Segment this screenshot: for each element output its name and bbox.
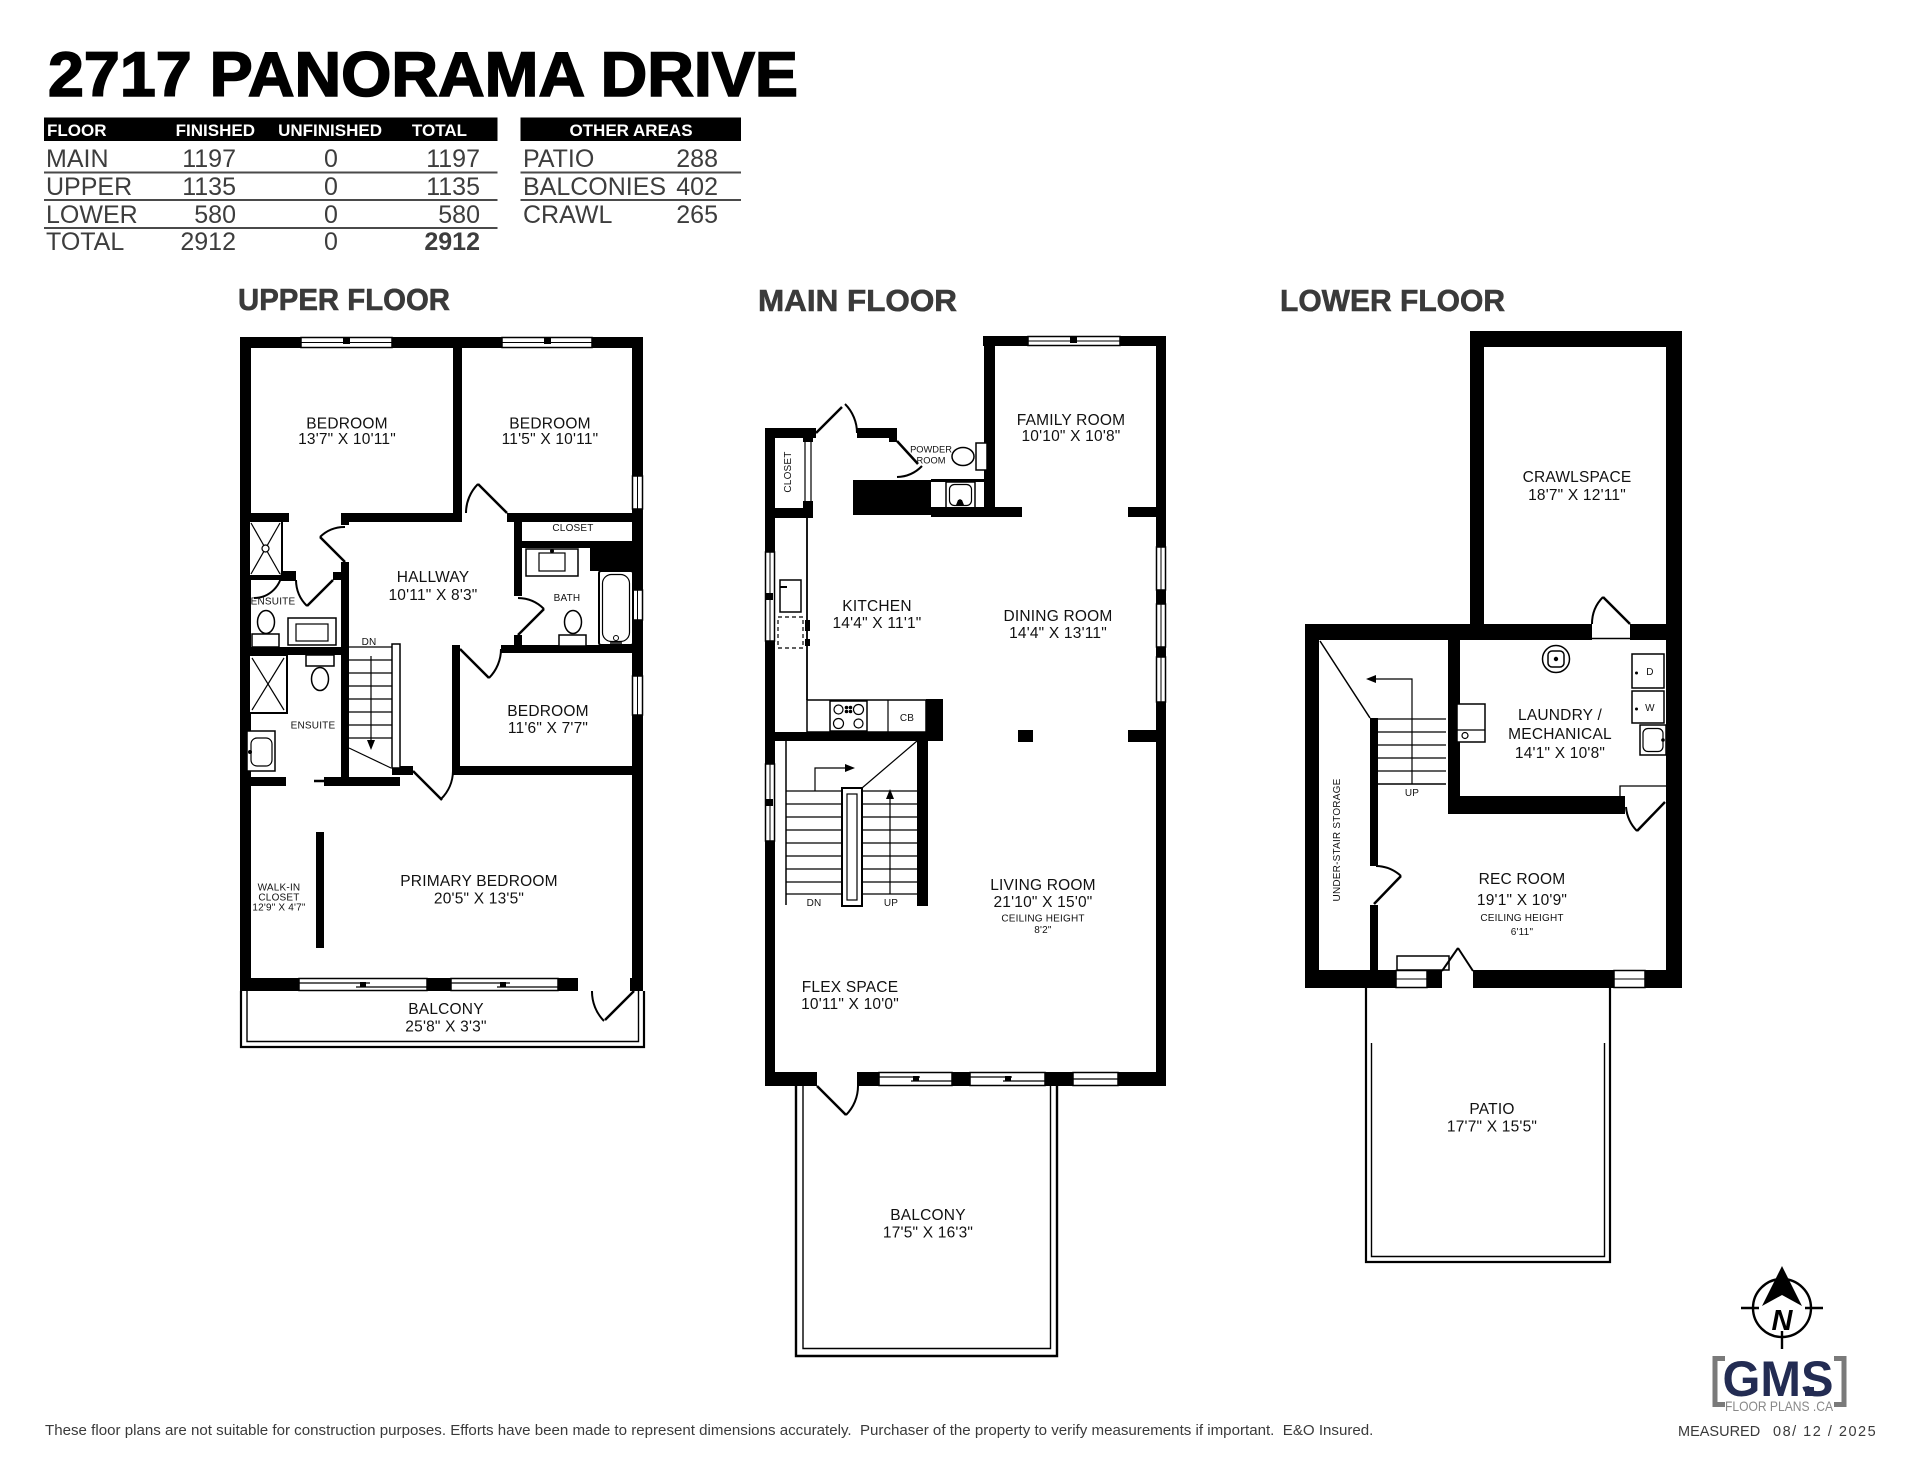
svg-text:TOTAL: TOTAL <box>46 228 124 256</box>
svg-text:DN: DN <box>362 637 377 648</box>
svg-text:14'4" X 11'1": 14'4" X 11'1" <box>832 615 921 632</box>
svg-text:1197: 1197 <box>426 145 480 173</box>
svg-text:N: N <box>1772 1305 1794 1337</box>
svg-text:BALCONY: BALCONY <box>890 1207 965 1224</box>
svg-text:W: W <box>1645 703 1655 714</box>
svg-text:LOWER: LOWER <box>46 201 138 229</box>
svg-text:14'1" X 10'8": 14'1" X 10'8" <box>1515 745 1605 762</box>
svg-text:MAIN FLOOR: MAIN FLOOR <box>758 283 957 318</box>
svg-text:17'5" X 16'3": 17'5" X 16'3" <box>883 1225 973 1242</box>
svg-text:17'7" X 15'5": 17'7" X 15'5" <box>1447 1119 1537 1136</box>
svg-text:OTHER AREAS: OTHER AREAS <box>569 121 692 140</box>
svg-text:CEILING HEIGHT: CEILING HEIGHT <box>1480 913 1563 924</box>
svg-text:FINISHED: FINISHED <box>176 121 255 140</box>
svg-text:DINING ROOM: DINING ROOM <box>1004 608 1113 625</box>
svg-text:LAUNDRY /: LAUNDRY / <box>1518 707 1602 724</box>
svg-text:20'5" X 13'5": 20'5" X 13'5" <box>434 891 524 908</box>
svg-text:BEDROOM: BEDROOM <box>306 416 388 433</box>
svg-text:0: 0 <box>324 173 338 201</box>
svg-text:0: 0 <box>324 201 338 229</box>
svg-text:11'5" X 10'11": 11'5" X 10'11" <box>502 431 599 448</box>
svg-text:CLOSET: CLOSET <box>552 523 593 534</box>
svg-text:UPPER: UPPER <box>46 173 132 201</box>
svg-text:2717 PANORAMA DRIVE: 2717 PANORAMA DRIVE <box>48 40 798 110</box>
svg-text:CRAWL: CRAWL <box>523 201 612 229</box>
svg-text:14'4" X 13'11": 14'4" X 13'11" <box>1009 625 1107 642</box>
svg-text:10'10" X 10'8": 10'10" X 10'8" <box>1021 428 1120 445</box>
svg-text:UPPER FLOOR: UPPER FLOOR <box>238 282 450 317</box>
svg-text:11'6" X 7'7": 11'6" X 7'7" <box>508 720 588 737</box>
svg-text:MECHANICAL: MECHANICAL <box>1508 726 1612 743</box>
svg-text:ENSUITE: ENSUITE <box>291 721 336 732</box>
svg-text:TOTAL: TOTAL <box>412 121 467 140</box>
svg-text:CLOSET: CLOSET <box>783 451 794 492</box>
svg-text:DN: DN <box>807 898 822 909</box>
svg-text:580: 580 <box>438 201 480 229</box>
svg-text:FLEX SPACE: FLEX SPACE <box>802 979 898 996</box>
svg-text:FLOOR: FLOOR <box>47 121 107 140</box>
svg-text:288: 288 <box>676 145 718 173</box>
svg-text:10'11" X 8'3": 10'11" X 8'3" <box>388 587 477 604</box>
svg-text:265: 265 <box>676 201 718 229</box>
svg-text:MEASURED: MEASURED <box>1678 1424 1760 1440</box>
svg-text:ROOM: ROOM <box>917 456 946 466</box>
svg-text:BALCONY: BALCONY <box>408 1001 483 1018</box>
svg-text:PRIMARY BEDROOM: PRIMARY BEDROOM <box>400 873 557 890</box>
svg-text:BEDROOM: BEDROOM <box>509 416 591 433</box>
svg-text:6'11": 6'11" <box>1511 927 1534 938</box>
svg-text:CEILING HEIGHT: CEILING HEIGHT <box>1001 914 1084 925</box>
svg-text:PATIO: PATIO <box>523 145 594 173</box>
svg-text:CRAWLSPACE: CRAWLSPACE <box>1523 469 1632 486</box>
svg-text:HALLWAY: HALLWAY <box>397 569 470 586</box>
svg-text:580: 580 <box>194 201 236 229</box>
svg-text:FLOOR PLANS .CA: FLOOR PLANS .CA <box>1725 1398 1834 1414</box>
svg-text:0: 0 <box>324 145 338 173</box>
svg-text:POWDER: POWDER <box>910 445 952 455</box>
svg-text:LOWER FLOOR: LOWER FLOOR <box>1280 283 1505 318</box>
svg-text:12'9" X 4'7": 12'9" X 4'7" <box>252 903 306 914</box>
svg-text:BALCONIES: BALCONIES <box>523 173 666 201</box>
svg-text:UNFINISHED: UNFINISHED <box>278 121 382 140</box>
svg-text:PATIO: PATIO <box>1469 1101 1514 1118</box>
svg-text:1197: 1197 <box>182 145 236 173</box>
svg-text:2912: 2912 <box>424 228 480 256</box>
svg-text:MAIN: MAIN <box>46 145 109 173</box>
svg-text:21'10" X 15'0": 21'10" X 15'0" <box>993 894 1092 911</box>
svg-text:08/ 12 / 2025: 08/ 12 / 2025 <box>1773 1424 1877 1440</box>
svg-text:402: 402 <box>676 173 718 201</box>
svg-text:1135: 1135 <box>426 173 480 201</box>
svg-text:D: D <box>1646 667 1653 678</box>
svg-text:CB: CB <box>900 713 914 724</box>
svg-text:FAMILY ROOM: FAMILY ROOM <box>1017 412 1125 429</box>
svg-text:LIVING ROOM: LIVING ROOM <box>990 877 1096 894</box>
svg-text:10'11" X 10'0": 10'11" X 10'0" <box>801 996 899 1013</box>
svg-text:25'8" X 3'3": 25'8" X 3'3" <box>405 1019 486 1036</box>
svg-text:UNDER-STAIR STORAGE: UNDER-STAIR STORAGE <box>1332 778 1343 901</box>
svg-text:BEDROOM: BEDROOM <box>507 703 589 720</box>
svg-text:1135: 1135 <box>182 173 236 201</box>
svg-text:UP: UP <box>1405 788 1419 799</box>
svg-text:UP: UP <box>884 898 898 909</box>
svg-text:13'7" X 10'11": 13'7" X 10'11" <box>298 431 396 448</box>
svg-text:8'2": 8'2" <box>1034 925 1052 936</box>
svg-text:ENSUITE: ENSUITE <box>251 597 296 608</box>
svg-text:REC ROOM: REC ROOM <box>1479 871 1566 888</box>
svg-text:18'7" X 12'11": 18'7" X 12'11" <box>1528 487 1626 504</box>
svg-text:KITCHEN: KITCHEN <box>842 598 911 615</box>
svg-text:BATH: BATH <box>554 593 581 604</box>
svg-text:0: 0 <box>324 228 338 256</box>
svg-text:These floor plans are not suit: These floor plans are not suitable for c… <box>45 1422 1373 1439</box>
svg-text:19'1" X 10'9": 19'1" X 10'9" <box>1477 892 1567 909</box>
svg-text:2912: 2912 <box>180 228 236 256</box>
